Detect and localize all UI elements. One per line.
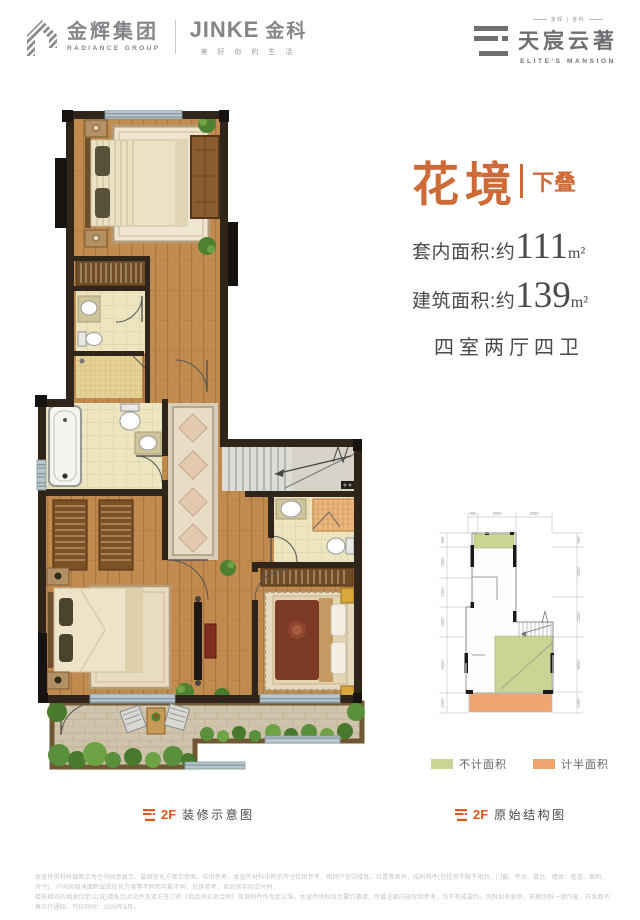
svg-text:1300: 1300 <box>440 698 445 708</box>
svg-text:950: 950 <box>470 511 478 516</box>
inner-area-value: 111 <box>515 232 568 262</box>
build-area-value: 139 <box>515 281 571 311</box>
svg-text:2300: 2300 <box>576 612 581 622</box>
radiance-logo-icon <box>25 18 59 56</box>
sink <box>140 436 157 450</box>
elite-cn: 天宸云著 <box>518 25 618 55</box>
not-counted-area-main <box>495 636 552 692</box>
jinke-slogan: 美 好 你 的 生 活 <box>201 47 297 57</box>
caption-floor: 2F <box>161 807 176 822</box>
radiance-en: RADIANCE GROUP <box>67 45 161 52</box>
caption-decorated: 2F 装修示意图 <box>143 806 255 823</box>
toilet <box>120 412 140 430</box>
elite-mansion-logo: 金辉 | 金科 天宸云著 ELITE'S MANSION <box>473 16 618 65</box>
bedroom-top <box>85 115 219 255</box>
svg-text:2900: 2900 <box>529 511 539 516</box>
svg-text:600: 600 <box>440 536 445 544</box>
caption-structural: 2F 原始结构图 <box>455 806 567 823</box>
header: 金辉集团 RADIANCE GROUP JINKE 金科 美 好 你 的 生 活… <box>25 16 618 65</box>
cloud-mark-small-icon <box>455 809 467 821</box>
logo-divider <box>175 20 176 54</box>
half-counted-balcony <box>469 693 552 712</box>
toilet <box>86 333 102 346</box>
radiance-cn: 金辉集团 <box>67 21 161 43</box>
pillow <box>59 598 73 626</box>
build-area-unit: m² <box>571 294 588 312</box>
legend-half-counted: 计半面积 <box>533 756 609 772</box>
plant <box>220 560 236 576</box>
console <box>205 624 216 658</box>
shower-room-upper <box>76 356 142 398</box>
svg-text:2200: 2200 <box>440 617 445 627</box>
svg-text:4600: 4600 <box>440 660 445 670</box>
legend-green-swatch <box>431 759 453 769</box>
svg-text:600: 600 <box>576 536 581 544</box>
legend-orange-swatch <box>533 759 555 769</box>
toilet-tank <box>78 332 86 346</box>
svg-text:2500: 2500 <box>440 557 445 567</box>
floorplan-2f-structural: 950 3000 2900 600 2500 2300 2200 4600 13… <box>425 505 615 753</box>
nightstand <box>341 588 354 603</box>
disclaimer-line2: 楼栋梯间的相关约定以(或)楼栋比对文件及双方签订的《商品房买卖合同》及其附件作为… <box>35 893 610 913</box>
caption-label: 装修示意图 <box>182 806 255 823</box>
caption-label: 原始结构图 <box>494 806 567 823</box>
not-counted-area-top <box>474 534 514 548</box>
floorplan-2f-decorated <box>35 110 380 770</box>
disclaimer: 本宣传资料所载图示为空间创意展示、装修优化方案示意图，仅供参考。本宣传材料中所示… <box>35 873 610 913</box>
unit-title: 花境 <box>412 146 518 215</box>
elite-en: ELITE'S MANSION <box>520 58 616 65</box>
disclaimer-line1: 本宣传资料所载图示为空间创意展示、装修优化方案示意图，仅供参考。本宣传材料中所示… <box>35 873 610 893</box>
bed-headboard <box>85 138 91 228</box>
svg-text:6800: 6800 <box>576 660 581 670</box>
inner-area-label: 套内面积:约 <box>412 237 515 264</box>
svg-text:1300: 1300 <box>576 698 581 708</box>
svg-text:2500: 2500 <box>576 567 581 577</box>
bed-headboard <box>48 592 54 668</box>
jinke-cn: 金科 <box>265 16 307 43</box>
pillow <box>59 634 73 662</box>
toilet <box>327 538 345 554</box>
unit-info: 花境 下叠 套内面积:约 111 m² 建筑面积:约 139 m² 四室两厅四卫 <box>412 146 628 360</box>
elite-small-text: 金辉 | 金科 <box>533 16 604 23</box>
cloud-mark-icon <box>473 26 509 56</box>
build-area-label: 建筑面积:约 <box>412 286 515 313</box>
unit-title-row: 花境 下叠 <box>412 146 628 215</box>
legend-not-counted: 不计面积 <box>431 756 507 772</box>
throw-blanket <box>275 600 319 680</box>
cloud-mark-small-icon <box>143 809 155 821</box>
jinke-logo: JINKE 金科 美 好 你 的 生 活 <box>190 16 308 57</box>
build-area-row: 建筑面积:约 139 m² <box>412 281 628 313</box>
wardrobe <box>261 568 353 586</box>
inner-area-unit: m² <box>568 245 585 263</box>
pillow <box>331 642 346 674</box>
inner-area-row: 套内面积:约 111 m² <box>412 232 628 264</box>
pillow <box>331 604 346 636</box>
shower-head <box>80 359 85 364</box>
svg-text:2300: 2300 <box>440 587 445 597</box>
svg-text:3000: 3000 <box>492 511 502 516</box>
room-config: 四室两厅四卫 <box>412 331 628 360</box>
corridor-runner <box>173 407 213 555</box>
unit-subtitle: 下叠 <box>532 165 576 197</box>
closet-row <box>76 260 148 286</box>
jinke-brand: JINKE <box>190 17 260 43</box>
radiance-jinke-logo: 金辉集团 RADIANCE GROUP JINKE 金科 美 好 你 的 生 活 <box>25 16 307 57</box>
tv-panel <box>194 602 202 680</box>
brochure-page: { "header": { "radiance_cn": "金辉集团", "ra… <box>0 0 640 920</box>
pillow <box>95 188 110 218</box>
caption-floor: 2F <box>473 807 488 822</box>
legend: 不计面积 计半面积 <box>431 756 609 772</box>
pillow <box>95 146 110 176</box>
title-divider <box>520 164 523 198</box>
sink <box>281 501 301 517</box>
